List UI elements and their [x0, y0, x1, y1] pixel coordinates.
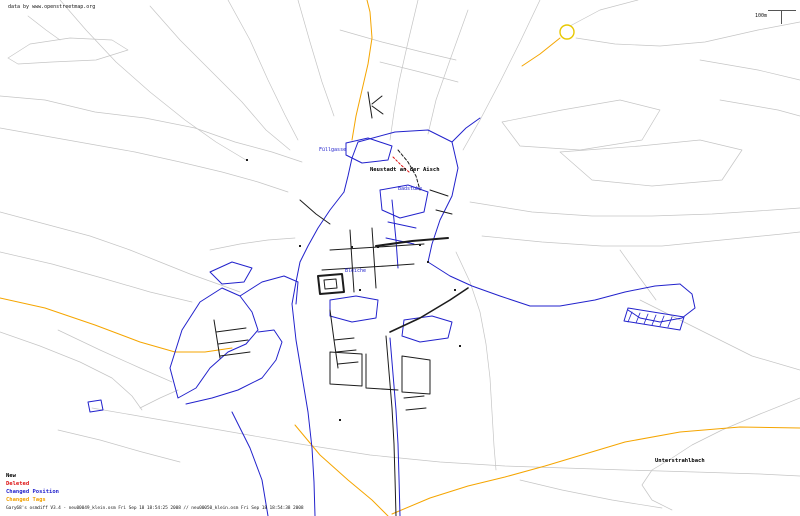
map-way-gray	[720, 100, 800, 116]
map-place-label: Bleiche	[345, 268, 366, 274]
map-way-gray	[700, 60, 800, 80]
map-way-black	[338, 362, 358, 364]
map-way-gray	[470, 202, 800, 216]
map-way-black	[436, 210, 452, 214]
map-way-blue	[388, 222, 416, 228]
map-node-marker	[351, 246, 353, 248]
map-way-gray	[0, 128, 288, 192]
map-way-gray	[298, 0, 334, 116]
map-canvas	[0, 0, 800, 516]
map-way-blue	[186, 330, 282, 404]
status-line: Gary68's osmdiff V3.4 - neu00049_klein.o…	[6, 506, 303, 511]
map-way-black	[318, 274, 344, 294]
map-node-marker	[377, 246, 379, 248]
map-way-black	[322, 264, 414, 270]
map-way-orange	[352, 0, 372, 140]
map-way-blue	[232, 412, 268, 516]
map-place-label: Unterstrahlbach	[655, 458, 705, 464]
map-way-gray	[560, 140, 742, 186]
map-way-gray	[640, 300, 800, 370]
legend-item: Deleted	[6, 480, 59, 488]
map-way-black	[350, 230, 354, 292]
map-way-black	[372, 106, 383, 114]
map-way-black	[430, 190, 448, 196]
map-way-blue	[668, 317, 672, 327]
legend: NewDeletedChanged PositionChanged Tags	[6, 472, 59, 504]
scale-label: 100m	[755, 13, 767, 19]
map-way-gray	[390, 0, 418, 140]
map-way-gray	[428, 10, 468, 134]
map-way-black	[404, 396, 424, 398]
osm-attribution: data by www.openstreetmap.org	[8, 4, 95, 10]
map-way-gray	[58, 430, 180, 462]
map-way-gray	[210, 238, 295, 250]
scale-bar-horizontal	[768, 10, 796, 11]
map-way-black	[368, 92, 372, 118]
map-node-marker	[459, 345, 461, 347]
map-node-marker	[454, 289, 456, 291]
map-way-orange	[392, 427, 800, 514]
map-way-black	[218, 340, 248, 344]
map-way-black	[330, 352, 362, 386]
map-way-black	[220, 352, 250, 356]
map-way-black	[372, 228, 376, 288]
map-way-orange	[295, 425, 388, 516]
map-node-marker	[299, 245, 301, 247]
legend-item: New	[6, 472, 59, 480]
map-way-black	[386, 336, 396, 516]
map-way-blue	[292, 304, 315, 516]
map-node-marker	[419, 244, 421, 246]
map-way-black	[214, 320, 220, 358]
map-way-blue	[652, 315, 656, 325]
map-node-marker	[427, 261, 429, 263]
map-way-gray	[380, 62, 458, 82]
map-way-gray	[150, 6, 290, 150]
map-way-blue	[628, 312, 632, 322]
map-way-black	[330, 310, 338, 368]
map-way-gray	[576, 22, 800, 46]
map-way-black	[390, 288, 468, 332]
map-way-blue	[170, 288, 258, 398]
map-way-blue	[330, 296, 378, 322]
map-way-orange	[522, 38, 560, 66]
map-node-marker	[359, 289, 361, 291]
map-way-gray	[8, 38, 128, 64]
legend-item: Changed Position	[6, 488, 59, 496]
map-node-marker	[339, 419, 341, 421]
legend-item: Changed Tags	[6, 496, 59, 504]
map-place-label: Badstube	[398, 186, 422, 192]
map-way-blue	[402, 316, 452, 342]
map-way-gray	[340, 30, 456, 60]
map-way-blue	[346, 138, 392, 163]
map-way-gray	[28, 16, 60, 40]
map-way-black	[334, 338, 354, 340]
map-roundabout	[560, 25, 574, 39]
map-way-gray	[58, 330, 172, 382]
map-way-blue	[210, 262, 252, 284]
map-place-label: Füllgasse	[319, 147, 346, 153]
map-way-black	[216, 328, 246, 332]
map-way-gray	[642, 398, 800, 510]
map-way-gray	[502, 100, 660, 150]
map-way-gray	[0, 252, 192, 302]
map-way-black	[324, 279, 337, 289]
map-way-black	[300, 200, 330, 224]
map-way-gray	[463, 0, 540, 150]
map-way-black	[402, 356, 430, 394]
map-way-blue	[452, 118, 480, 142]
map-way-gray	[482, 232, 800, 246]
map-way-blue	[292, 192, 344, 304]
map-way-gray	[0, 212, 240, 292]
map-way-blue	[88, 400, 103, 412]
map-way-blue	[240, 276, 298, 304]
map-way-blue	[392, 200, 398, 268]
map-place-label: Neustadt an der Aisch	[370, 167, 440, 173]
map-way-gray	[0, 332, 142, 410]
map-way-black	[372, 96, 382, 104]
map-way-blue	[428, 262, 680, 306]
map-way-gray	[520, 480, 662, 508]
map-way-black	[406, 408, 426, 410]
map-way-black	[336, 350, 356, 352]
scale-bar-tick	[781, 10, 782, 24]
map-way-gray	[92, 408, 800, 476]
map-way-gray	[140, 390, 178, 408]
map-way-gray	[228, 0, 298, 140]
map-way-gray	[570, 0, 638, 26]
map-node-marker	[246, 159, 248, 161]
map-way-gray	[0, 96, 302, 162]
map-way-gray	[456, 252, 496, 470]
osmdiff-render: FüllgasseNeustadt an der AischBadstubeBl…	[0, 0, 800, 516]
map-way-gray	[620, 250, 656, 300]
